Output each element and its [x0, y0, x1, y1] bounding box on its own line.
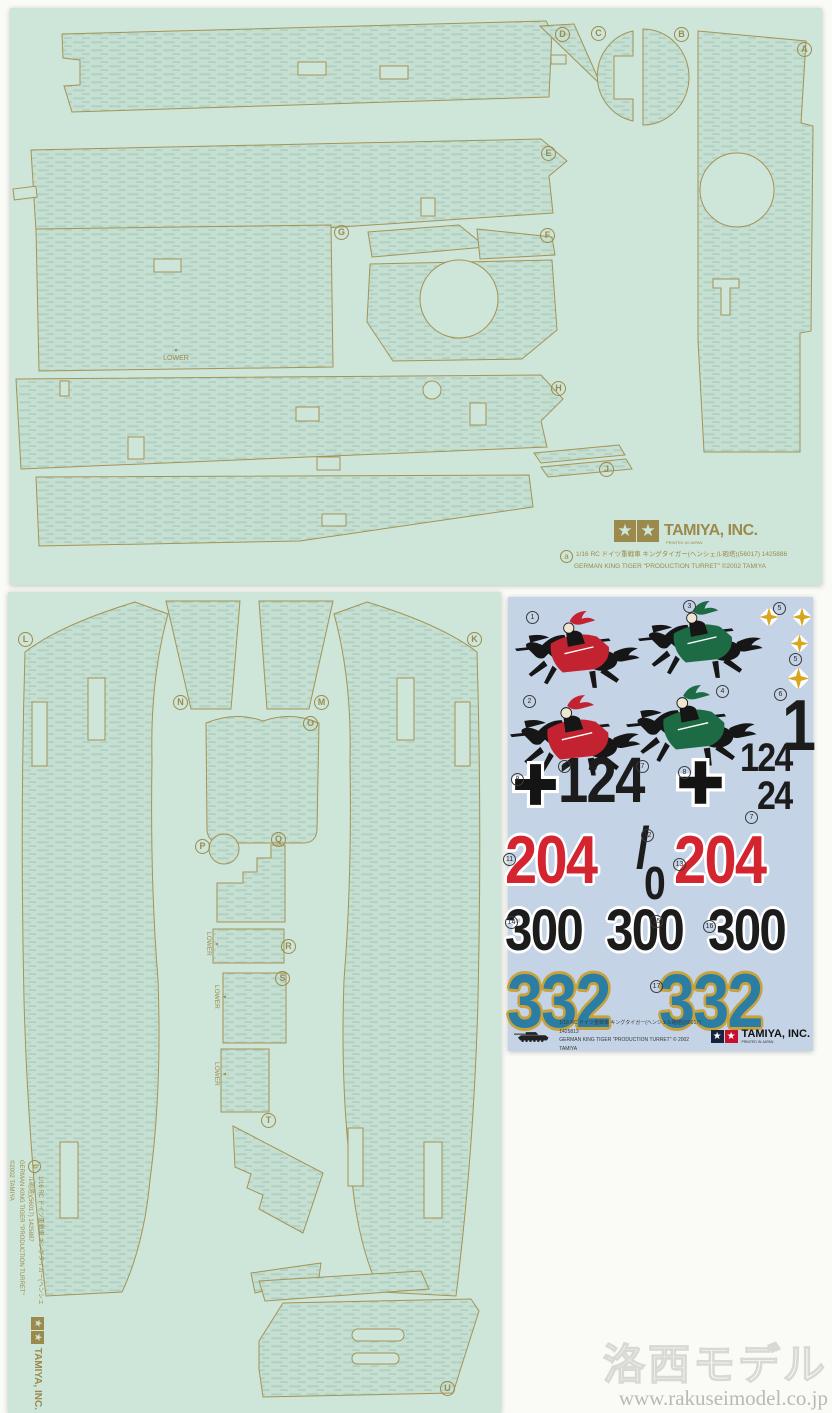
part-label: T — [261, 1113, 276, 1128]
part-label: U — [440, 1381, 455, 1396]
lower-marking: ▼ LOWER — [205, 932, 218, 956]
item-number: 11 — [503, 853, 516, 866]
kit-info-en: GERMAN KING TIGER "PRODUCTION TURRET" © … — [559, 1036, 702, 1053]
part-label: A — [797, 42, 812, 57]
item-number: 7 — [745, 811, 758, 824]
item-number: 17 — [650, 980, 663, 993]
numeral-24: 24 — [757, 776, 791, 816]
decal-imprint: 1/16 RC ドイツ重戦車 キングタイガー(ヘンシェル砲塔)(56017) 1… — [514, 1019, 810, 1053]
tamiya-logo-icon: ★★ — [711, 1030, 738, 1043]
numeral-124: 124 — [740, 738, 792, 778]
down-arrow-icon: ▼ — [221, 1062, 227, 1086]
part-label: Q — [271, 832, 286, 847]
part-label: B — [674, 27, 689, 42]
item-number: 12 — [641, 829, 654, 842]
part-label: D — [555, 27, 570, 42]
item-number: 4 — [716, 685, 729, 698]
zimmerit-sheet-b — [8, 592, 501, 1413]
watermark-title: 洛西モデル — [603, 1344, 828, 1386]
part-label: R — [281, 939, 296, 954]
numeral-300: 300 — [606, 902, 683, 960]
zimmerit-sheet-a — [10, 8, 822, 585]
item-number: 6 — [774, 688, 787, 701]
kit-info-jp: 1/16 RC ドイツ重戦車 キングタイガー(ヘンシェル砲塔)(56017) 1… — [25, 1176, 44, 1309]
down-arrow-icon: ▼ — [213, 932, 219, 956]
item-number: 13 — [673, 858, 686, 871]
part-label: O — [303, 716, 318, 731]
lower-marking: ▼ LOWER — [213, 985, 226, 1009]
part-label: K — [467, 632, 482, 647]
watermark-url: www.rakuseimodel.co.jp — [603, 1386, 828, 1411]
brand-name: TAMIYA, INC. — [664, 522, 758, 540]
item-number: 5 — [789, 653, 802, 666]
brand-subtext: PRINTED IN JAPAN — [742, 1040, 810, 1044]
part-label: L — [18, 632, 33, 647]
kit-info-jp: 1/16 RC ドイツ重戦車 キングタイガー(ヘンシェル砲塔)(56017) 1… — [576, 550, 787, 560]
item-number: 5 — [773, 602, 786, 615]
numeral-204: 204 — [505, 826, 596, 894]
down-arrow-icon: ▼ — [221, 985, 227, 1009]
kit-info-en: GERMAN KING TIGER "PRODUCTION TURRET" ©2… — [574, 563, 818, 570]
part-label: M — [314, 695, 329, 710]
item-number: 9 — [558, 760, 571, 773]
gold-cross-decal — [789, 633, 810, 654]
gold-cross-decal — [791, 606, 813, 628]
part-label: C — [591, 26, 606, 41]
item-number: 1 — [526, 611, 539, 624]
part-label: G — [334, 225, 349, 240]
item-number: 8 — [511, 773, 524, 786]
part-label: P — [195, 839, 210, 854]
shop-watermark: 洛西モデル www.rakuseimodel.co.jp — [603, 1344, 828, 1411]
sheet-b-imprint: b 1/16 RC ドイツ重戦車 キングタイガー(ヘンシェル砲塔)(56017)… — [6, 1160, 44, 1410]
sheet-a-imprint: ★★ TAMIYA, INC. PRINTED IN JAPAN a 1/16 … — [560, 520, 818, 570]
brand-name: TAMIYA, INC. — [32, 1348, 43, 1410]
brand-subtext: PRINTED IN JAPAN — [666, 540, 818, 545]
numeral-300: 300 — [708, 902, 785, 960]
numeral-300: 300 — [505, 902, 582, 960]
tank-silhouette-icon — [514, 1028, 553, 1044]
part-label: N — [173, 695, 188, 710]
numeral-204: 204 — [674, 826, 765, 894]
item-number: 8 — [678, 766, 691, 779]
scan-page: { "brand": { "name": "TAMIYA, INC.", "su… — [0, 0, 832, 1413]
jousting-knight-green — [638, 598, 766, 686]
item-number: 7 — [636, 760, 649, 773]
part-label: F — [540, 228, 555, 243]
part-label: S — [275, 971, 290, 986]
tamiya-logo-icon: ★★ — [614, 520, 659, 542]
item-number: 3 — [683, 600, 696, 613]
numeral-124: 124 — [558, 748, 644, 812]
kit-info-en: GERMAN KING TIGER "PRODUCTION TURRET" ©2… — [6, 1160, 25, 1309]
item-number: 15 — [650, 915, 663, 928]
part-label: J — [599, 462, 614, 477]
item-number: 14 — [505, 916, 518, 929]
lower-marking: ▼ LOWER — [158, 349, 194, 362]
item-number: 16 — [703, 920, 716, 933]
item-number: 2 — [523, 695, 536, 708]
lower-marking: ▼ LOWER — [213, 1062, 226, 1086]
tamiya-logo-icon: ★★ — [31, 1317, 44, 1344]
sheet-id-badge: a — [560, 550, 573, 563]
brand-name: TAMIYA, INC. — [742, 1028, 810, 1040]
part-label: E — [541, 146, 556, 161]
kit-info-jp: 1/16 RC ドイツ重戦車 キングタイガー(ヘンシェル砲塔)(56017) 1… — [559, 1019, 702, 1036]
sheet-id-badge: b — [28, 1160, 41, 1173]
part-label: H — [551, 381, 566, 396]
